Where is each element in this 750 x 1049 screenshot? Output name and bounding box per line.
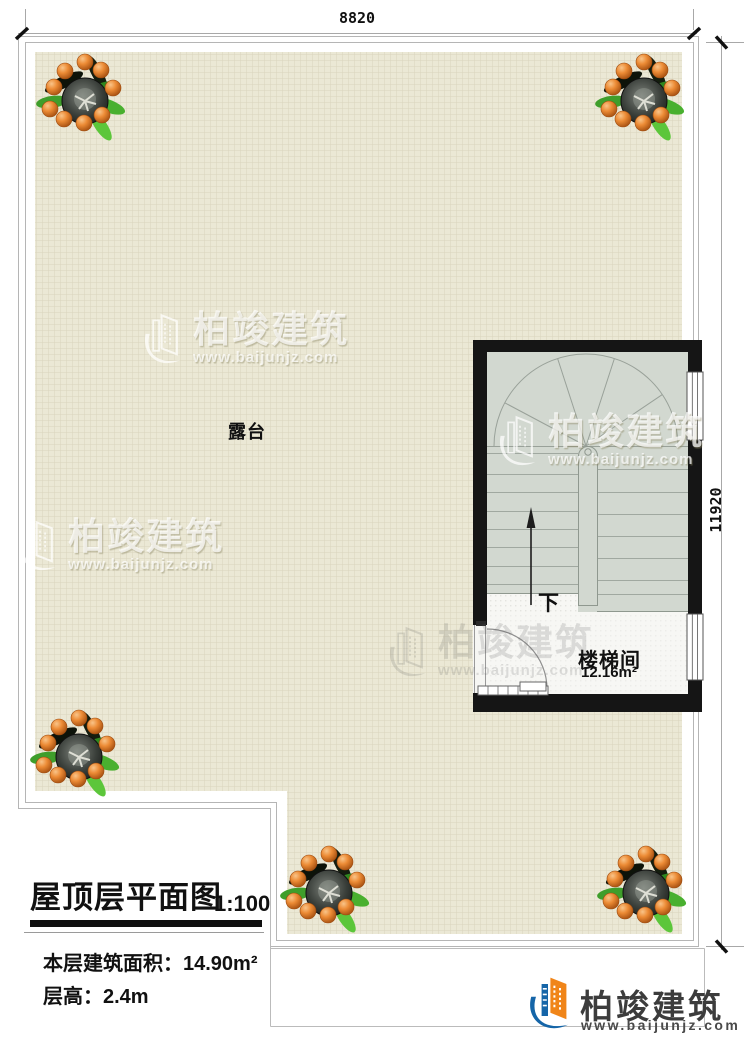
floor-plan-page: 8820 11920 露台 楼梯间 12.16m² 下 柏竣建筑 www.bai… — [0, 0, 750, 1049]
stair-down-label: 下 — [538, 587, 559, 617]
dimension-height-label: 11920 — [707, 470, 725, 550]
floor-height-text: 层高：2.4m — [43, 980, 149, 1009]
stair-divider — [579, 447, 598, 606]
company-logo-url: www.baijunjz.com — [581, 1017, 740, 1033]
floor-area-text: 本层建筑面积：14.90m² — [43, 947, 258, 976]
company-logo-icon — [528, 968, 576, 1040]
title-underline-thin — [24, 932, 264, 933]
title-underline-bar — [30, 920, 262, 927]
drawing-scale: 1:100 — [214, 891, 270, 917]
terrace-label: 露台 — [228, 418, 266, 444]
dimension-width-label: 8820 — [317, 9, 397, 27]
stair-room-area-label: 12.16m² — [581, 664, 637, 681]
page-title: 屋顶层平面图 — [30, 872, 222, 917]
